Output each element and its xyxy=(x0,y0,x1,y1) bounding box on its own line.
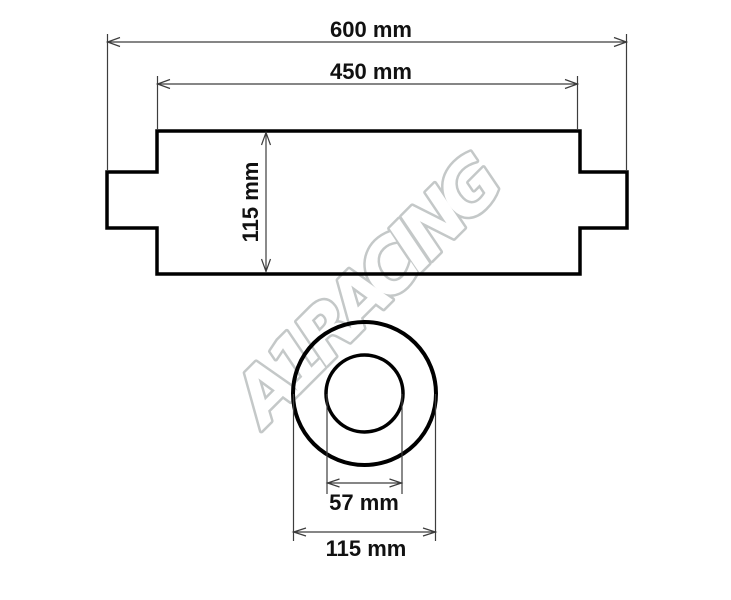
inner-pipe-circle xyxy=(326,355,403,432)
outer-diameter-label: 115 mm xyxy=(326,536,407,561)
body-length-label: 450 mm xyxy=(330,59,412,84)
overall-length-label: 600 mm xyxy=(330,17,412,42)
inner-diameter-label: 57 mm xyxy=(329,490,399,515)
technical-drawing: A1RACING 600 mm 450 mm xyxy=(0,0,731,600)
drawing-canvas: A1RACING 600 mm 450 mm xyxy=(0,0,731,600)
dimension-outer-diameter xyxy=(294,394,436,541)
body-height-label: 115 mm xyxy=(238,162,263,243)
dimension-overall-length xyxy=(108,34,627,170)
dimension-inner-diameter xyxy=(327,394,402,494)
